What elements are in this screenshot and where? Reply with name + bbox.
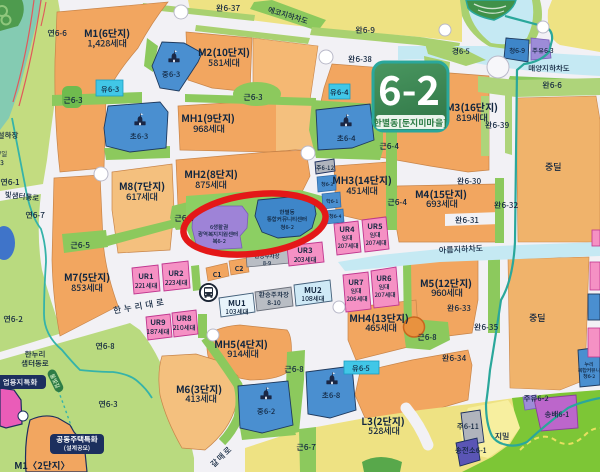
svg-text:중딜: 중딜 bbox=[544, 160, 562, 173]
svg-text:근6-8: 근6-8 bbox=[284, 364, 304, 375]
svg-text:설하장: 설하장 bbox=[0, 130, 18, 141]
svg-text:주6-12: 주6-12 bbox=[316, 163, 335, 172]
svg-text:853세대: 853세대 bbox=[71, 281, 103, 294]
svg-text:완6-9: 완6-9 bbox=[355, 25, 374, 36]
svg-text:근6-4: 근6-4 bbox=[379, 141, 399, 152]
svg-text:근6-3: 근6-3 bbox=[63, 95, 82, 106]
svg-text:206세대: 206세대 bbox=[346, 294, 367, 303]
svg-text:103세대: 103세대 bbox=[225, 306, 248, 316]
svg-text:C2: C2 bbox=[235, 264, 244, 274]
svg-text:221세대: 221세대 bbox=[133, 280, 157, 290]
svg-text:근6-4: 근6-4 bbox=[387, 197, 407, 208]
svg-text:완6-31: 완6-31 bbox=[455, 215, 479, 226]
svg-text:중6-2: 중6-2 bbox=[257, 406, 276, 417]
svg-text:아름지하차도: 아름지하차도 bbox=[439, 243, 484, 256]
svg-text:207세대: 207세대 bbox=[337, 241, 358, 250]
svg-text:C1: C1 bbox=[213, 270, 222, 280]
svg-text:업용지특화: 업용지특화 bbox=[3, 377, 38, 388]
svg-text:6-2: 6-2 bbox=[378, 59, 440, 117]
svg-text:819세대: 819세대 bbox=[456, 111, 488, 124]
svg-text:완6-34: 완6-34 bbox=[442, 353, 466, 364]
svg-text:초6-4: 초6-4 bbox=[337, 133, 356, 144]
svg-text:960세대: 960세대 bbox=[431, 286, 463, 299]
svg-text:주유6-2: 주유6-2 bbox=[523, 393, 549, 404]
svg-text:완6-38: 완6-38 bbox=[348, 54, 372, 65]
svg-text:초6-8: 초6-8 bbox=[322, 390, 340, 401]
svg-text:청6-2: 청6-2 bbox=[280, 223, 293, 231]
svg-text:중딜: 중딜 bbox=[528, 311, 546, 324]
svg-text:초6-3: 초6-3 bbox=[130, 131, 148, 142]
svg-text:223세대: 223세대 bbox=[163, 277, 187, 287]
svg-text:207세대: 207세대 bbox=[374, 290, 395, 299]
svg-text:매양지하차도: 매양지하차도 bbox=[528, 63, 569, 74]
svg-text:8-9: 8-9 bbox=[263, 259, 271, 267]
svg-text:완6-6: 완6-6 bbox=[542, 80, 561, 91]
svg-text:유6-3: 유6-3 bbox=[101, 84, 119, 95]
svg-text:학6-1: 학6-1 bbox=[326, 198, 338, 205]
svg-text:중6-3: 중6-3 bbox=[162, 69, 180, 80]
svg-text:연6-6: 연6-6 bbox=[47, 28, 66, 39]
svg-text:지밀: 지밀 bbox=[495, 431, 510, 442]
svg-text:413세대: 413세대 bbox=[185, 392, 217, 405]
svg-text:(설계공모): (설계공모) bbox=[64, 443, 90, 452]
svg-text:송배6-1: 송배6-1 bbox=[544, 409, 569, 420]
svg-text:1,428세대: 1,428세대 bbox=[87, 37, 127, 50]
svg-text:근6-3: 근6-3 bbox=[243, 92, 262, 103]
svg-text:유6-4: 유6-4 bbox=[330, 87, 349, 98]
svg-text:3: 3 bbox=[0, 157, 4, 167]
svg-text:주유6-3: 주유6-3 bbox=[531, 45, 554, 55]
svg-text:근6-5: 근6-5 bbox=[70, 240, 89, 251]
svg-text:청6-2: 청6-2 bbox=[583, 373, 595, 380]
svg-text:581세대: 581세대 bbox=[207, 56, 240, 69]
svg-text:완6-30: 완6-30 bbox=[457, 176, 481, 187]
svg-text:복6-2: 복6-2 bbox=[212, 237, 225, 245]
svg-text:유6-5: 유6-5 bbox=[352, 363, 370, 374]
svg-text:통합커뮤니티센터: 통합커뮤니티센터 bbox=[267, 215, 307, 223]
svg-text:완6-35: 완6-35 bbox=[474, 322, 498, 333]
svg-text:샘터동로: 샘터동로 bbox=[20, 358, 49, 369]
svg-text:연6-1: 연6-1 bbox=[0, 177, 20, 188]
svg-text:528세대: 528세대 bbox=[367, 424, 400, 437]
svg-text:주6-11: 주6-11 bbox=[457, 421, 479, 432]
svg-text:693세대: 693세대 bbox=[426, 197, 458, 210]
svg-text:875세대: 875세대 bbox=[195, 178, 227, 191]
svg-text:근6-8: 근6-8 bbox=[417, 332, 437, 343]
svg-text:완6-32: 완6-32 bbox=[494, 200, 518, 211]
svg-text:8-10: 8-10 bbox=[267, 297, 281, 307]
svg-text:송전소6-1: 송전소6-1 bbox=[455, 445, 487, 456]
svg-text:청6-9: 청6-9 bbox=[509, 45, 525, 55]
svg-text:완6-33: 완6-33 bbox=[447, 303, 471, 314]
svg-text:경6-5: 경6-5 bbox=[452, 46, 470, 57]
svg-text:연6-7: 연6-7 bbox=[25, 210, 44, 221]
svg-text:203세대: 203세대 bbox=[292, 254, 316, 264]
svg-text:연6-2: 연6-2 bbox=[3, 314, 23, 325]
svg-text:청6-3: 청6-3 bbox=[321, 181, 333, 188]
svg-text:465세대: 465세대 bbox=[365, 321, 397, 334]
svg-text:완6-37: 완6-37 bbox=[216, 3, 240, 14]
svg-text:207세대: 207세대 bbox=[365, 238, 386, 247]
svg-text:187세대: 187세대 bbox=[146, 326, 169, 336]
svg-text:완6-39: 완6-39 bbox=[485, 120, 509, 131]
svg-text:914세대: 914세대 bbox=[227, 347, 259, 360]
svg-text:연6-8: 연6-8 bbox=[95, 341, 115, 352]
svg-text:청6-4: 청6-4 bbox=[329, 213, 342, 220]
svg-text:451세대: 451세대 bbox=[346, 184, 378, 197]
svg-text:근6-7: 근6-7 bbox=[296, 442, 315, 453]
svg-text:210세대: 210세대 bbox=[171, 322, 195, 332]
svg-text:M1〈2단지〉: M1〈2단지〉 bbox=[14, 458, 70, 472]
svg-text:108세대: 108세대 bbox=[301, 293, 324, 303]
svg-text:617세대: 617세대 bbox=[126, 190, 158, 203]
svg-text:968세대: 968세대 bbox=[193, 122, 225, 135]
svg-text:연6-3: 연6-3 bbox=[98, 399, 117, 410]
svg-text:한별동[둔지미마을]: 한별동[둔지미마을] bbox=[373, 116, 447, 129]
